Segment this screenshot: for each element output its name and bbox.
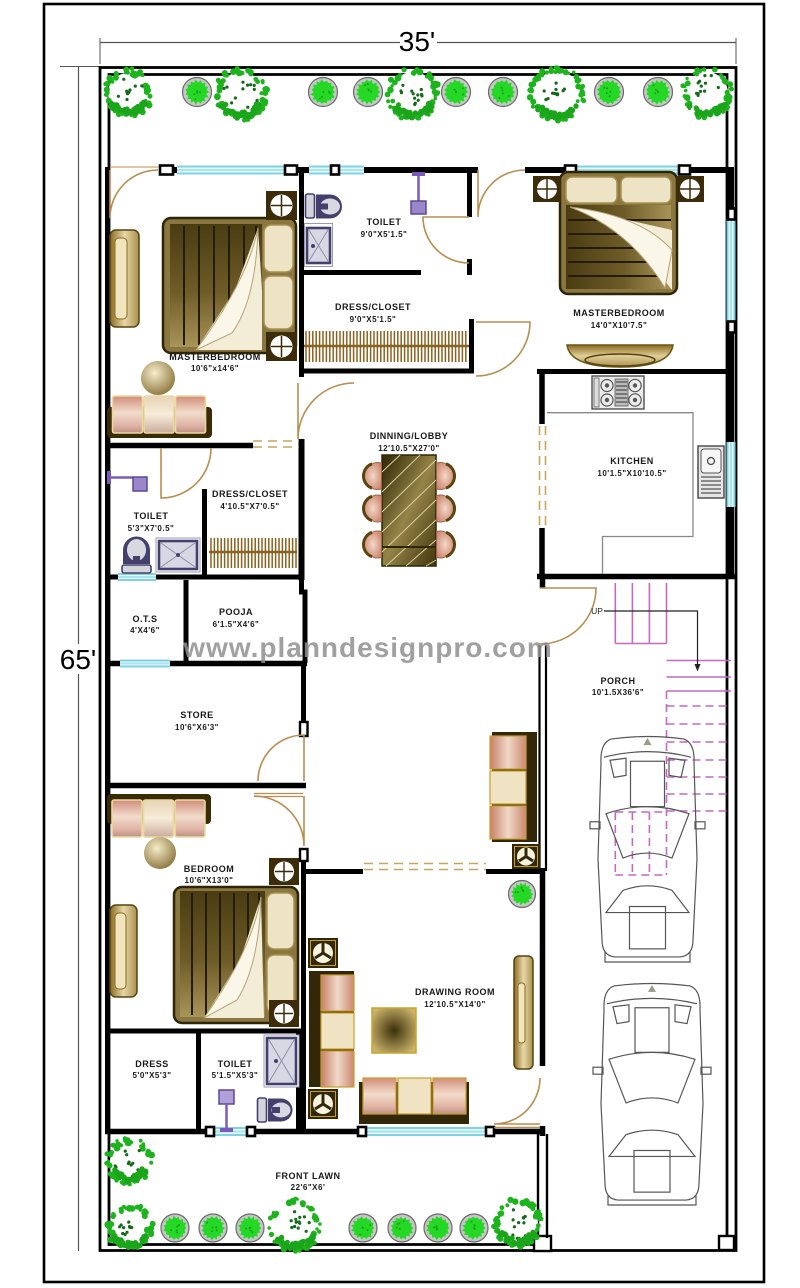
svg-text:TOILET: TOILET (134, 511, 169, 521)
svg-text:12'10.5"X14'0": 12'10.5"X14'0" (424, 1000, 486, 1009)
svg-text:TOILET: TOILET (218, 1059, 253, 1069)
svg-text:DRAWING ROOM: DRAWING ROOM (415, 987, 495, 997)
svg-text:10'6"X13'0": 10'6"X13'0" (185, 876, 234, 885)
svg-text:10'1.5X36'6": 10'1.5X36'6" (592, 688, 644, 697)
svg-text:35': 35' (399, 26, 436, 57)
svg-text:4'10.5"X7'0.5": 4'10.5"X7'0.5" (220, 502, 279, 511)
svg-text:9'0"X5'1.5": 9'0"X5'1.5" (350, 315, 397, 324)
svg-text:5'3"X7'0.5": 5'3"X7'0.5" (128, 524, 175, 533)
svg-text:6'1.5"X4'6": 6'1.5"X4'6" (213, 620, 260, 629)
svg-text:12'10.5"X27'0": 12'10.5"X27'0" (378, 444, 440, 453)
svg-text:DINNING/LOBBY: DINNING/LOBBY (370, 431, 449, 441)
svg-text:BEDROOM: BEDROOM (184, 864, 235, 874)
svg-text:14'0"X10'7.5": 14'0"X10'7.5" (591, 321, 648, 330)
svg-text:5'1.5"X5'3": 5'1.5"X5'3" (212, 1071, 259, 1080)
svg-text:UP: UP (591, 606, 603, 616)
svg-text:DRESS/CLOSET: DRESS/CLOSET (335, 302, 411, 312)
svg-text:POOJA: POOJA (219, 607, 253, 617)
svg-text:5'0"X5'3": 5'0"X5'3" (132, 1071, 171, 1080)
svg-text:DRESS: DRESS (135, 1059, 169, 1069)
svg-text:STORE: STORE (180, 710, 213, 720)
svg-text:MASTERBEDROOM: MASTERBEDROOM (573, 308, 665, 318)
svg-text:www.planndesignpro.com: www.planndesignpro.com (182, 632, 552, 663)
svg-text:O.T.S: O.T.S (132, 614, 157, 624)
svg-text:MASTERBEDROOM: MASTERBEDROOM (169, 352, 261, 362)
svg-text:22'6"X6': 22'6"X6' (291, 1183, 326, 1192)
svg-text:9'0"X5'1.5": 9'0"X5'1.5" (361, 230, 408, 239)
svg-text:FRONT LAWN: FRONT LAWN (276, 1171, 341, 1181)
svg-text:10'1.5"X10'10.5": 10'1.5"X10'10.5" (597, 469, 666, 478)
svg-text:10'6"X6'3": 10'6"X6'3" (175, 723, 219, 732)
svg-text:10'6"x14'6": 10'6"x14'6" (191, 364, 239, 373)
svg-text:KITCHEN: KITCHEN (610, 456, 654, 466)
svg-text:DRESS/CLOSET: DRESS/CLOSET (212, 489, 288, 499)
svg-text:PORCH: PORCH (600, 676, 635, 686)
svg-text:4'X4'6": 4'X4'6" (130, 626, 160, 635)
svg-text:65': 65' (60, 644, 97, 675)
svg-text:TOILET: TOILET (367, 217, 402, 227)
